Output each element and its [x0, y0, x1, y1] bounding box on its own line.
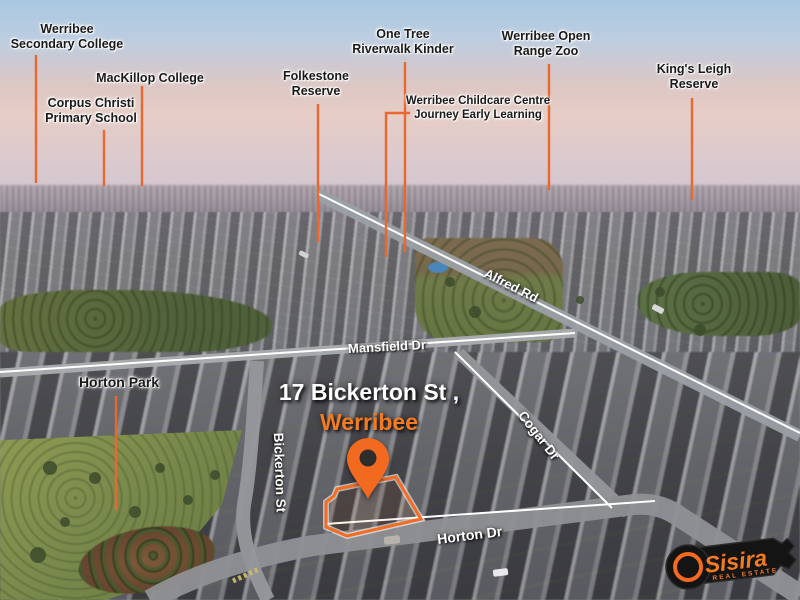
brand-logo: Sisira REAL ESTATE	[658, 530, 800, 598]
green-belt-right	[638, 272, 800, 336]
poi-label-werribee-secondary-college: Werribee Secondary College	[0, 22, 142, 52]
property-suburb: Werribee	[269, 409, 469, 436]
poi-label-kings-leigh-reserve: King's Leigh Reserve	[619, 62, 769, 92]
aerial-property-map: Werribee Secondary College MacKillop Col…	[0, 0, 800, 600]
property-address: 17 Bickerton St ,	[269, 379, 469, 406]
playground-patch	[428, 262, 448, 273]
reserve-green-center	[415, 238, 563, 342]
poi-label-one-tree-kinder: One Tree Riverwalk Kinder	[328, 27, 478, 57]
poi-label-corpus-christi: Corpus Christi Primary School	[16, 96, 166, 126]
road-label-bickerton-st: Bickerton St	[271, 432, 289, 512]
poi-label-werribee-childcare: Werribee Childcare Centre Journey Early …	[398, 95, 558, 122]
poi-label-horton-park: Horton Park	[44, 374, 194, 391]
poi-label-werribee-zoo: Werribee Open Range Zoo	[471, 29, 621, 59]
poi-label-mackillop-college: MacKillop College	[75, 71, 225, 86]
poi-label-folkestone-reserve: Folkestone Reserve	[241, 69, 391, 99]
